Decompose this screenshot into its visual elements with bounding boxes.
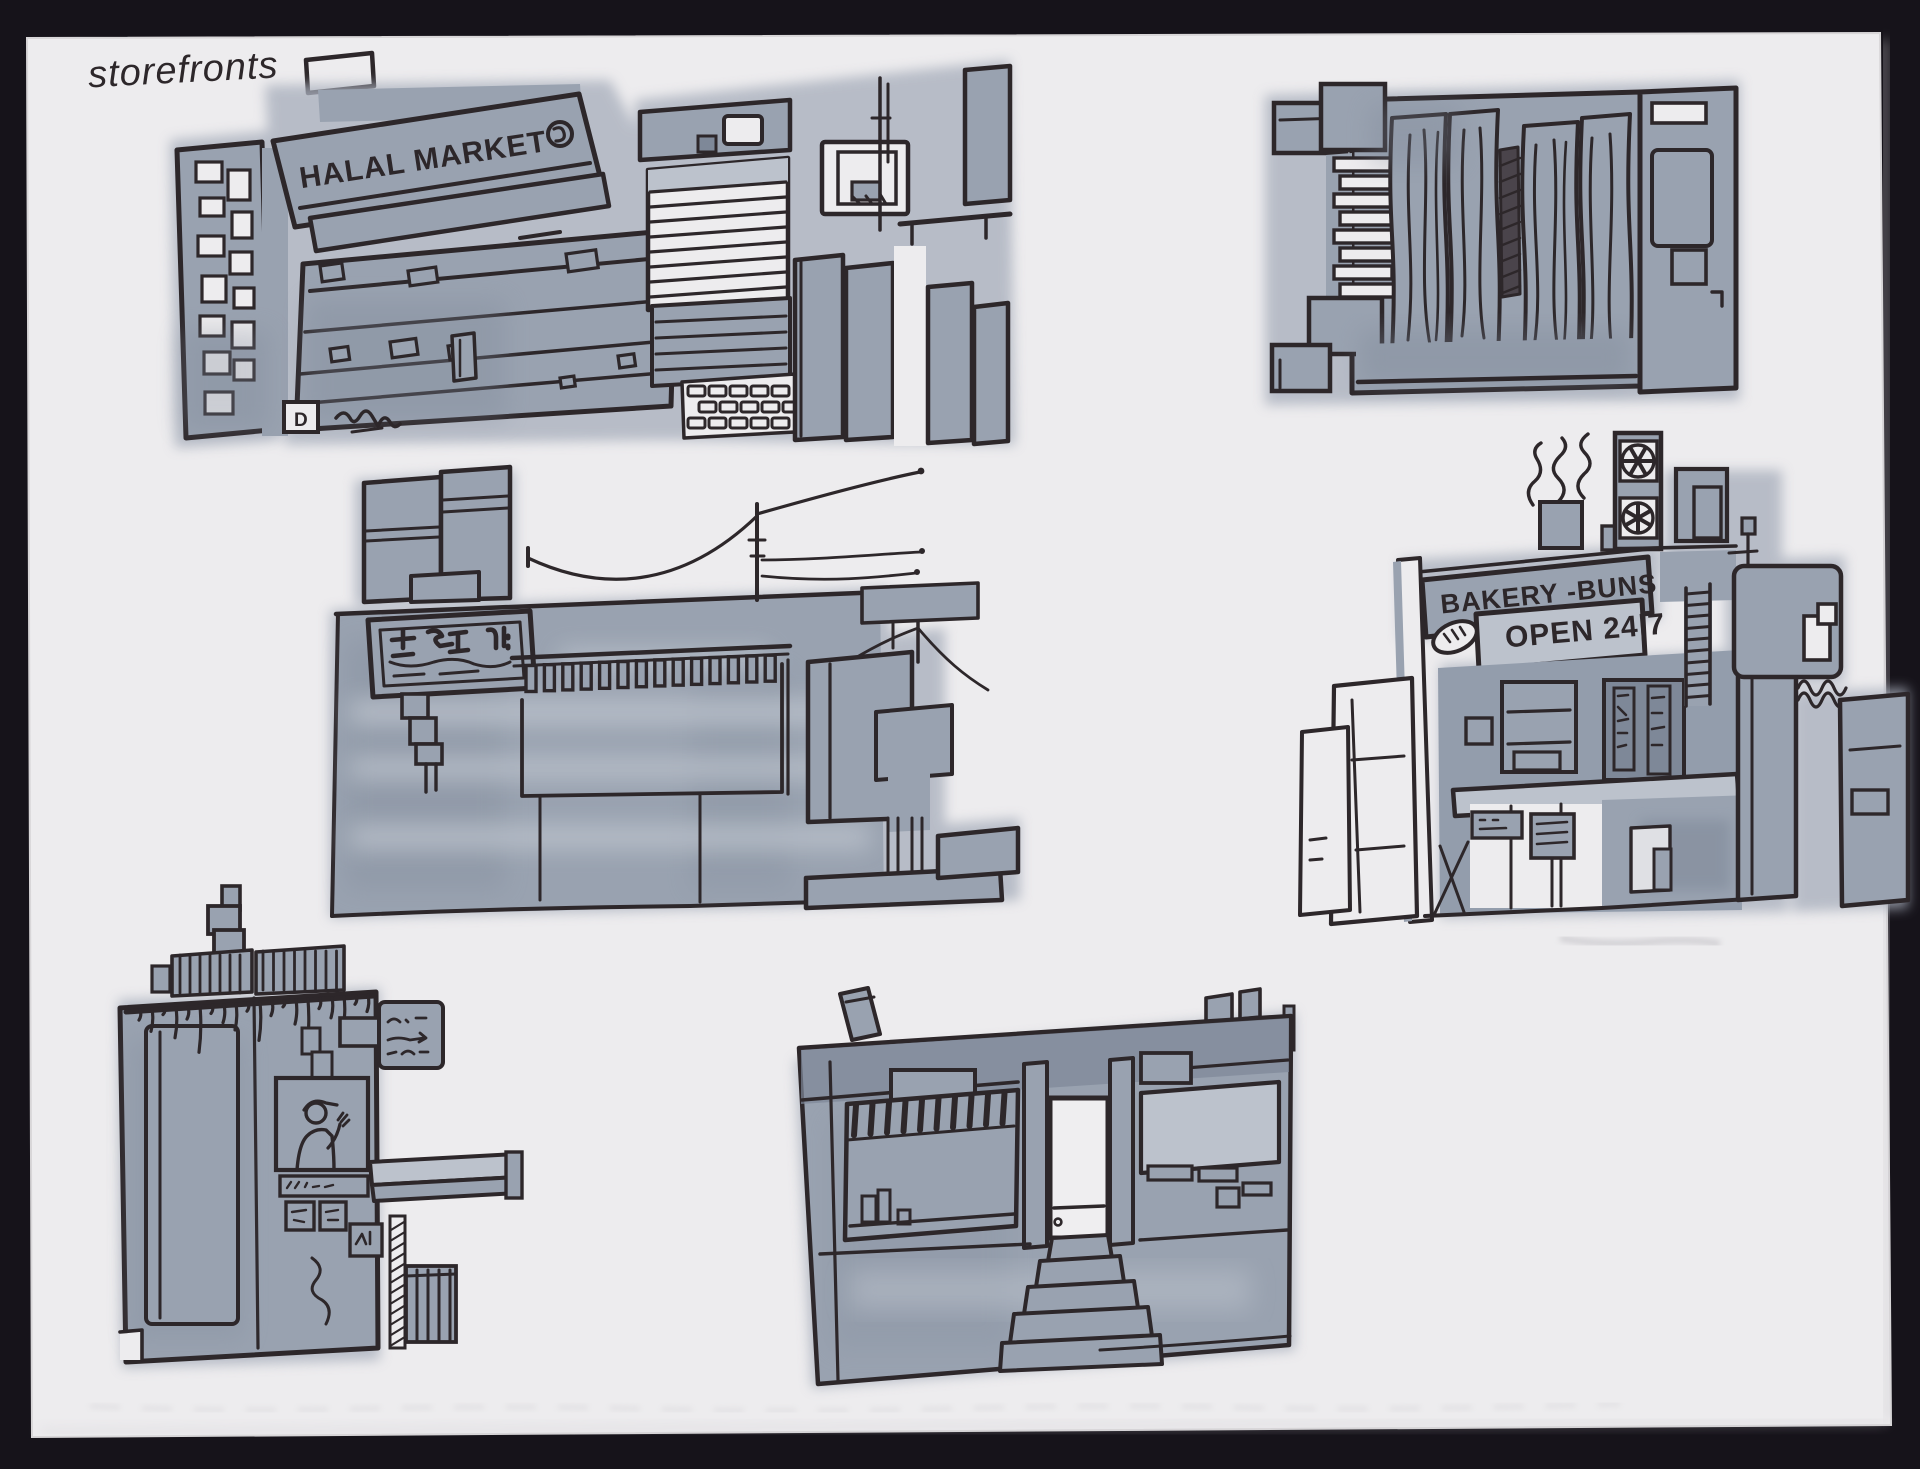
svg-text:D: D (294, 410, 308, 431)
